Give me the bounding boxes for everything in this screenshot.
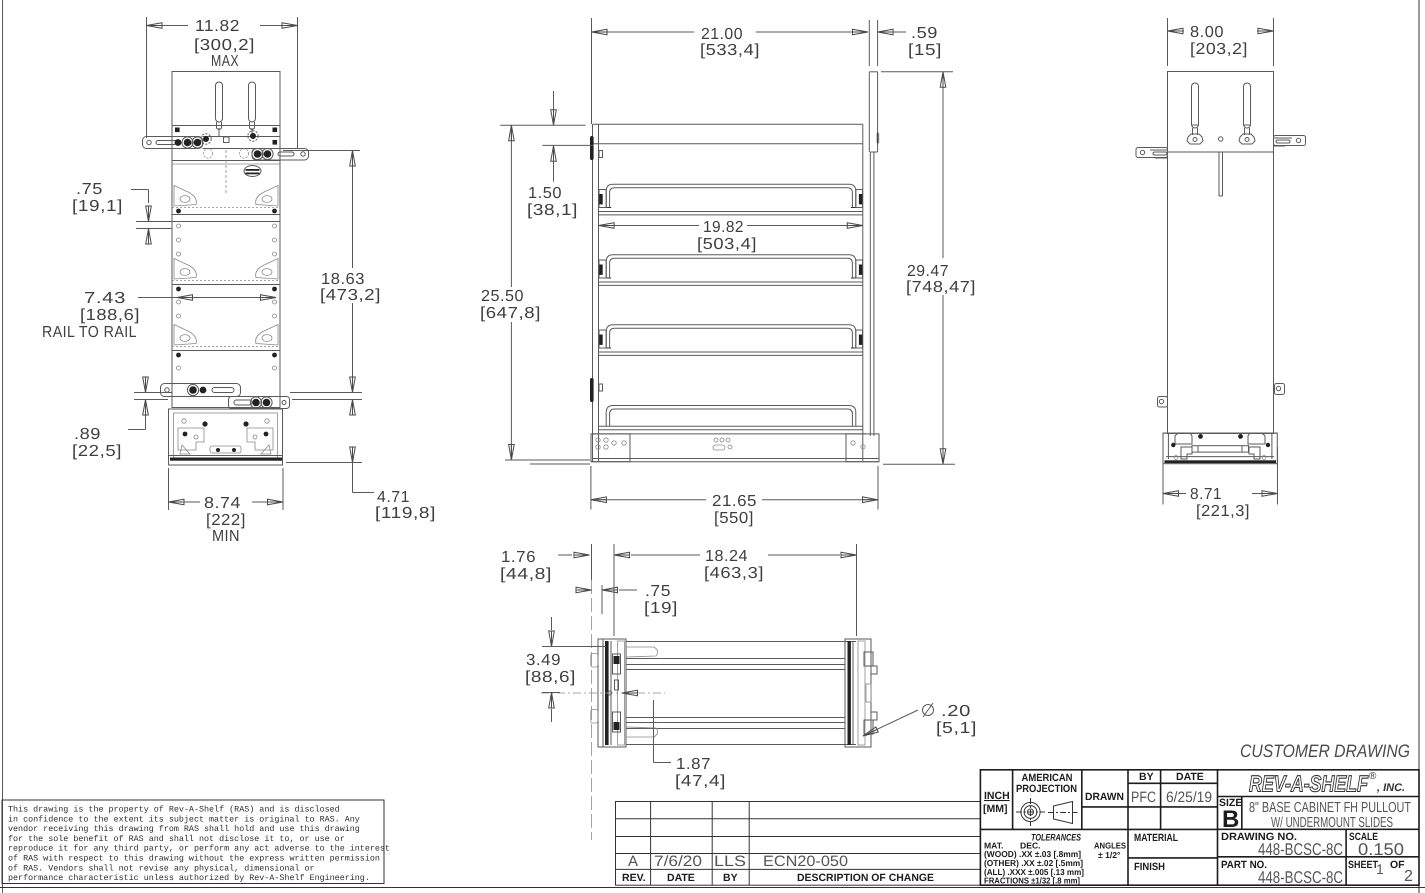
svg-text:W/ UNDERMOUNT SLIDES: W/ UNDERMOUNT SLIDES <box>1271 815 1393 831</box>
svg-text:[503,4]: [503,4] <box>697 236 757 253</box>
svg-text:1.76: 1.76 <box>501 549 536 566</box>
svg-text:7/6/20: 7/6/20 <box>654 853 702 870</box>
svg-text:PROJECTION: PROJECTION <box>1016 783 1077 795</box>
svg-text:reproduce it for any third par: reproduce it for any third party, or per… <box>8 844 390 854</box>
svg-text:[19]: [19] <box>644 600 678 617</box>
svg-text:LLS: LLS <box>714 853 746 870</box>
svg-text:FRACTIONS ±1/32 [.8 mm]: FRACTIONS ±1/32 [.8 mm] <box>984 876 1080 886</box>
svg-text:BY: BY <box>1139 771 1154 783</box>
svg-text:MAX: MAX <box>211 53 239 70</box>
svg-text:MATERIAL: MATERIAL <box>1134 832 1178 844</box>
svg-text:8.00: 8.00 <box>1190 24 1224 41</box>
svg-text:MIN: MIN <box>212 528 240 545</box>
svg-text:SHEET: SHEET <box>1348 859 1378 871</box>
svg-text:8.71: 8.71 <box>1190 486 1222 503</box>
svg-text:[647,8]: [647,8] <box>480 305 541 322</box>
svg-text:7.43: 7.43 <box>84 290 126 307</box>
svg-text:[221,3]: [221,3] <box>1196 503 1250 520</box>
svg-text:ECN20-050: ECN20-050 <box>763 853 848 870</box>
svg-text:.59: .59 <box>911 25 938 42</box>
svg-text:A: A <box>628 853 638 870</box>
svg-text:2: 2 <box>1404 868 1413 885</box>
svg-text:[38,1]: [38,1] <box>527 202 578 219</box>
svg-text:± 1/2°: ± 1/2° <box>1098 850 1121 860</box>
svg-text:DESCRIPTION OF CHANGE: DESCRIPTION OF CHANGE <box>797 872 934 884</box>
svg-text:.89: .89 <box>74 426 101 443</box>
svg-text:19.82: 19.82 <box>703 219 744 236</box>
svg-text:OF: OF <box>1390 859 1405 871</box>
svg-text:25.50: 25.50 <box>481 288 524 305</box>
svg-text:[47,4]: [47,4] <box>675 773 726 790</box>
svg-text:18.63: 18.63 <box>321 271 365 288</box>
svg-text:.75: .75 <box>76 181 103 198</box>
svg-text:1.87: 1.87 <box>676 756 711 773</box>
svg-text:21.00: 21.00 <box>701 26 743 43</box>
svg-text:[188,6]: [188,6] <box>80 307 140 324</box>
svg-text:[748,47]: [748,47] <box>906 279 976 296</box>
svg-text:vendor receiving this drawing: vendor receiving this drawing from RAS s… <box>8 824 360 834</box>
svg-text:[15]: [15] <box>908 42 942 59</box>
svg-text:[300,2]: [300,2] <box>194 37 255 54</box>
svg-text:REV-A-SHELF: REV-A-SHELF <box>1249 771 1369 797</box>
svg-text:FINISH: FINISH <box>1134 861 1165 873</box>
svg-text:[MM]: [MM] <box>983 803 1008 815</box>
svg-text:[19,1]: [19,1] <box>72 198 123 215</box>
svg-text:8" BASE CABINET FH PULLOUT: 8" BASE CABINET FH PULLOUT <box>1249 800 1411 816</box>
svg-text:[88,6]: [88,6] <box>525 669 576 686</box>
svg-text:3.49: 3.49 <box>526 652 561 669</box>
svg-text:1.50: 1.50 <box>528 185 562 202</box>
svg-text:[463,3]: [463,3] <box>704 565 764 582</box>
svg-text:.20: .20 <box>941 703 971 720</box>
svg-text:®: ® <box>1369 771 1377 782</box>
svg-text:of RAS. Vendors shall not rev: of RAS. Vendors shall not revise any phy… <box>8 863 315 873</box>
svg-text:[5,1]: [5,1] <box>936 720 977 737</box>
svg-text:for the sole benefit of RAS an: for the sole benefit of RAS and shall no… <box>8 834 345 844</box>
svg-text:[222]: [222] <box>206 512 246 529</box>
svg-text:6/25/19: 6/25/19 <box>1166 789 1212 806</box>
svg-text:21.65: 21.65 <box>712 493 757 510</box>
svg-text:11.82: 11.82 <box>195 18 240 35</box>
svg-text:CUSTOMER DRAWING: CUSTOMER DRAWING <box>1240 741 1410 761</box>
svg-text:REV.: REV. <box>622 872 646 884</box>
svg-text:ANGLES: ANGLES <box>1094 841 1126 851</box>
svg-text:[473,2]: [473,2] <box>320 287 381 304</box>
svg-text:448-BCSC-8C: 448-BCSC-8C <box>1258 840 1343 859</box>
svg-text:BY: BY <box>723 872 738 884</box>
svg-text:[533,4]: [533,4] <box>700 42 760 59</box>
svg-text:8.74: 8.74 <box>204 495 241 512</box>
svg-text:4.71: 4.71 <box>377 489 410 506</box>
svg-text:INCH: INCH <box>984 790 1010 802</box>
svg-text:0.150: 0.150 <box>1358 840 1404 859</box>
svg-text:DATE: DATE <box>667 872 695 884</box>
svg-text:448-BCSC-8C: 448-BCSC-8C <box>1258 868 1343 887</box>
svg-text:in confidence to the extent it: in confidence to the extent its subject … <box>8 814 360 824</box>
svg-text:[203,2]: [203,2] <box>1190 41 1248 58</box>
svg-text:of RAS with respect to this dr: of RAS with respect to this drawing with… <box>8 854 380 864</box>
svg-text:.75: .75 <box>645 583 671 600</box>
svg-text:[22,5]: [22,5] <box>72 443 122 460</box>
svg-text:RAIL TO RAIL: RAIL TO RAIL <box>42 324 137 341</box>
svg-text:DATE: DATE <box>1176 771 1204 783</box>
svg-text:[119,8]: [119,8] <box>375 505 436 522</box>
svg-text:DRAWN: DRAWN <box>1085 791 1124 803</box>
svg-text:PFC: PFC <box>1131 789 1156 806</box>
svg-text:1: 1 <box>1376 861 1384 877</box>
svg-text:, INC.: , INC. <box>1376 782 1405 794</box>
svg-text:B: B <box>1222 806 1239 833</box>
svg-text:[550]: [550] <box>714 510 754 527</box>
svg-text:29.47: 29.47 <box>907 263 949 280</box>
svg-text:performance characteristic unl: performance characteristic unless author… <box>8 873 370 883</box>
svg-text:18.24: 18.24 <box>705 548 748 565</box>
svg-text:This drawing is the property o: This drawing is the property of Rev-A-Sh… <box>8 805 340 815</box>
svg-text:[44,8]: [44,8] <box>500 566 552 583</box>
